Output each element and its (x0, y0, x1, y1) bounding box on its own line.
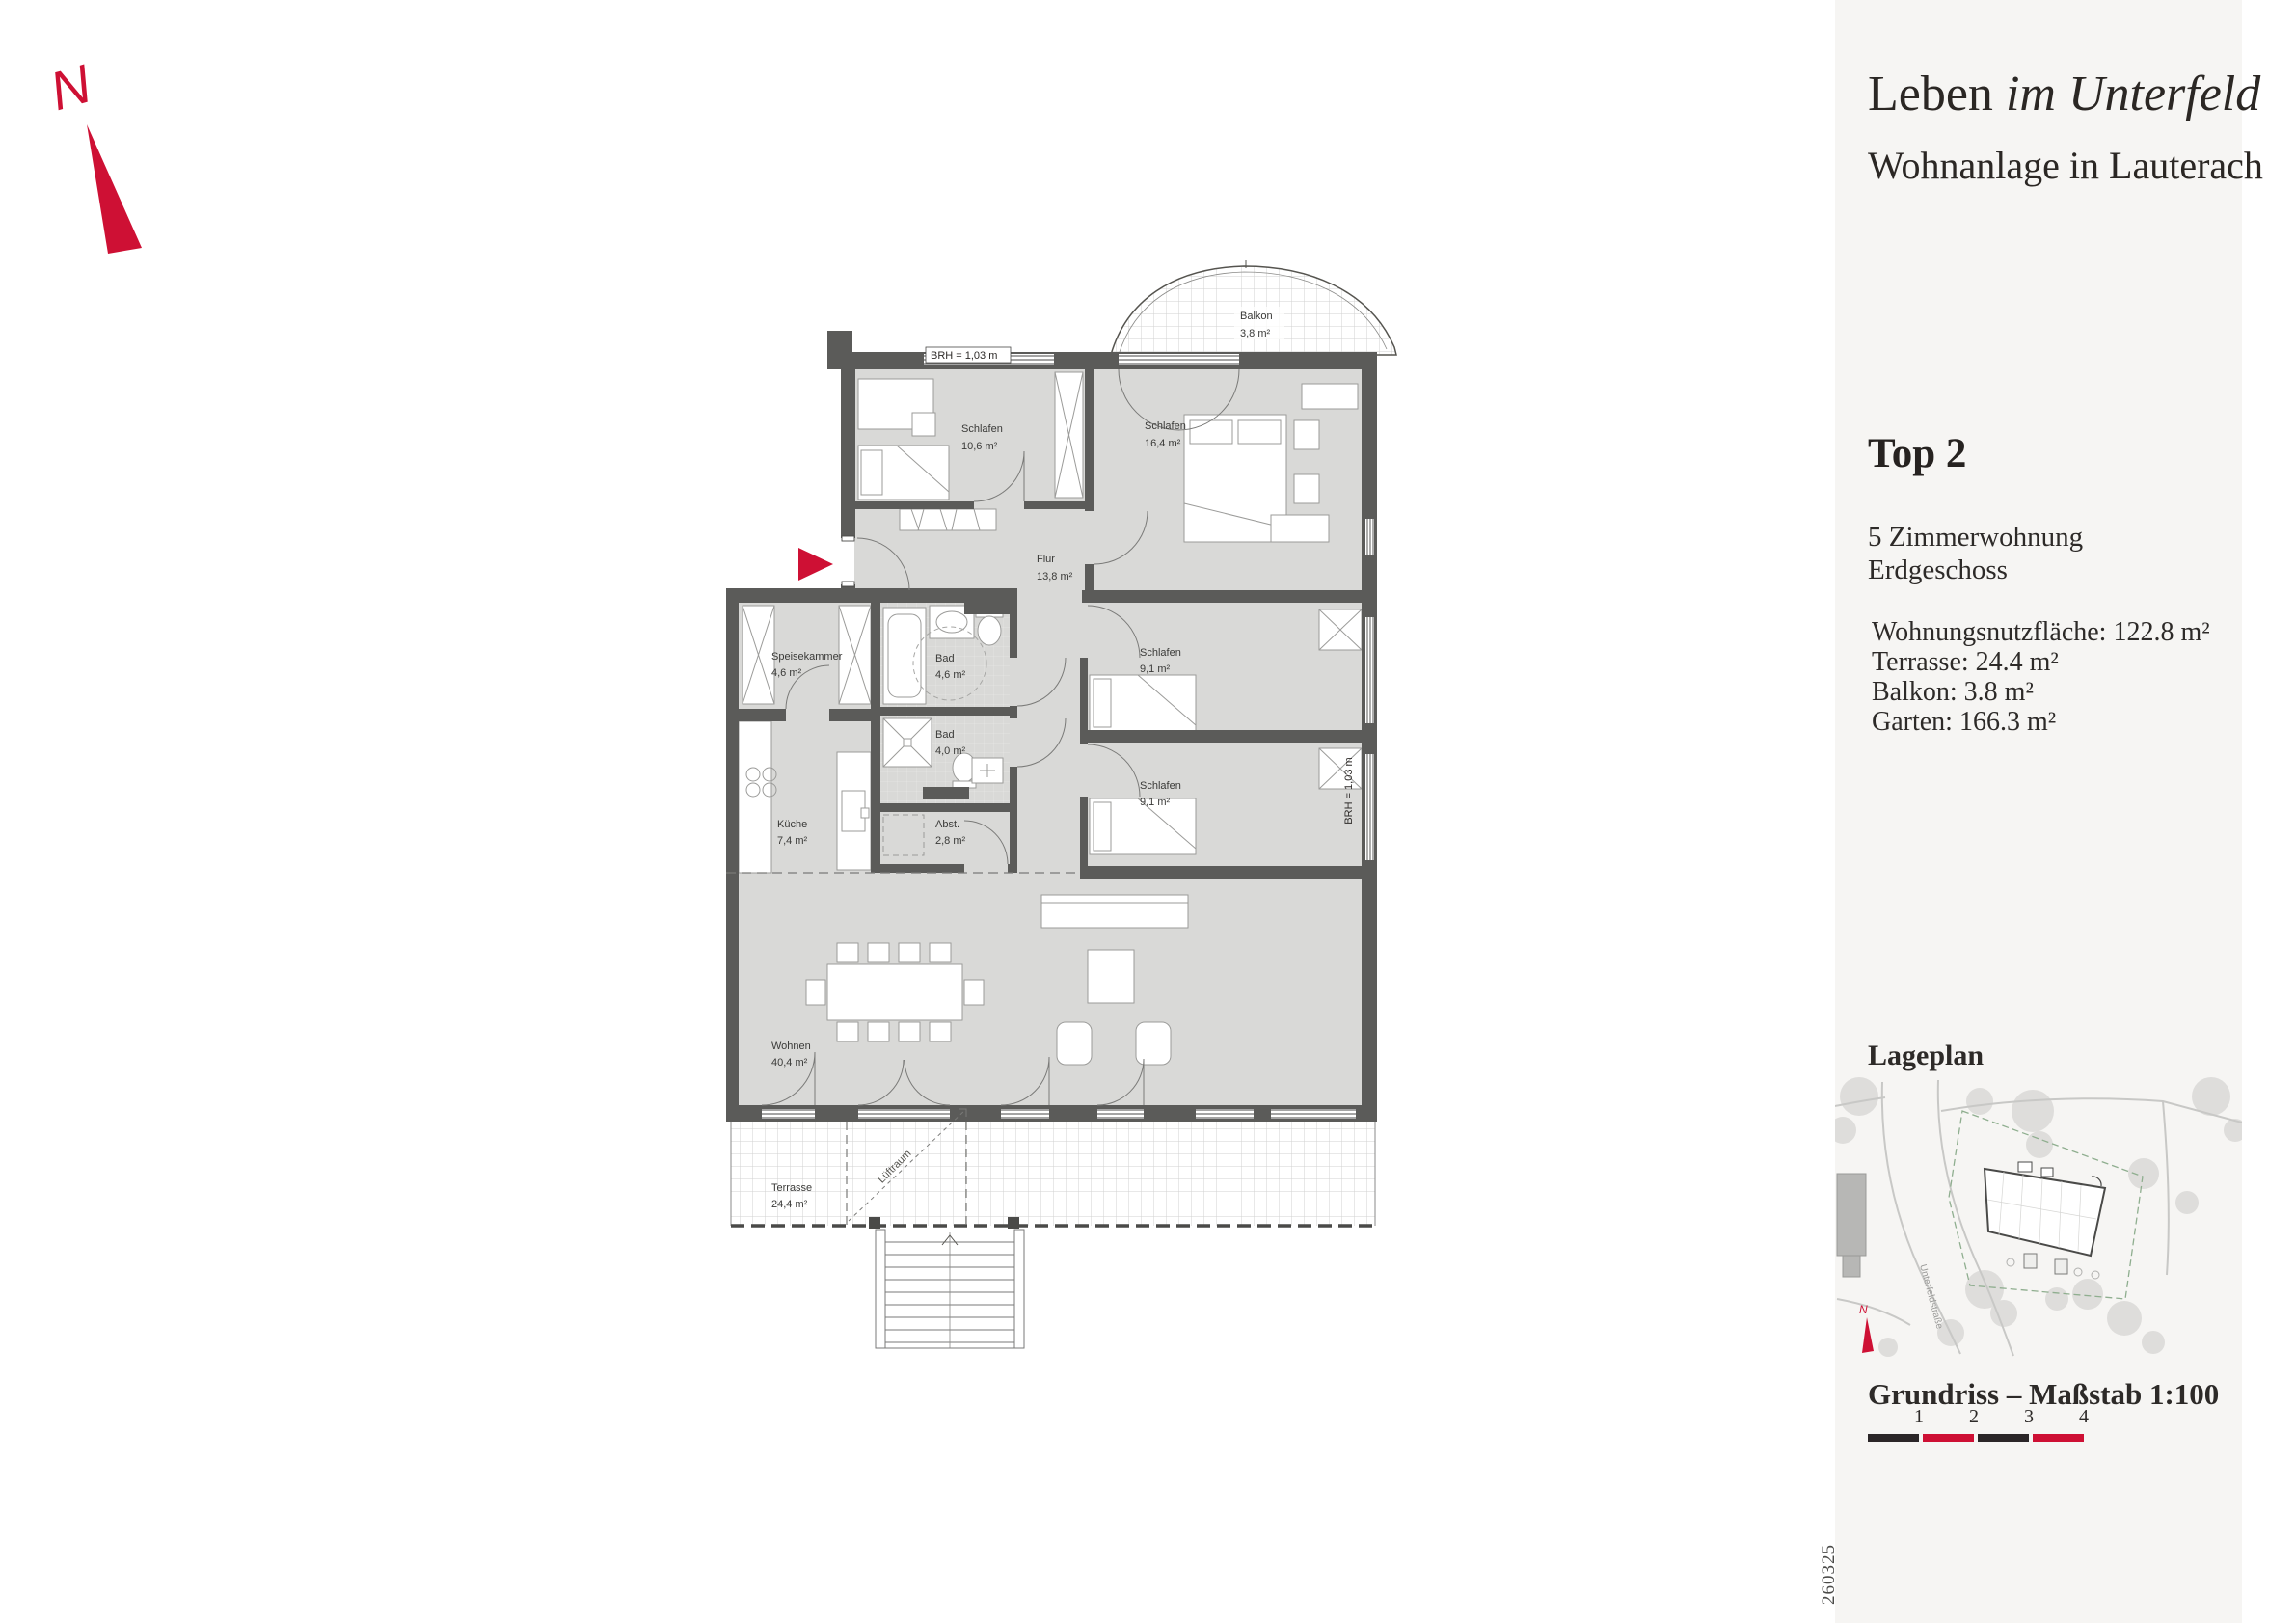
project-title-italic: im Unterfeld (2006, 67, 2260, 122)
street-label: Unterfeldstraße (1917, 1263, 1945, 1331)
project-title-regular: Leben (1868, 67, 1993, 122)
bench-icon (1271, 515, 1329, 542)
scale-tick: 4 (2069, 1406, 2098, 1428)
room-label: Schlafen (1140, 647, 1181, 659)
area-line: Terrasse: 24.4 m² (1872, 647, 2210, 677)
dresser-icon (1302, 384, 1358, 409)
project-building-footprint (1985, 1162, 2105, 1279)
room-area: 9,1 m² (1140, 797, 1171, 808)
coffee-table-icon (1088, 950, 1134, 1003)
scale-segment (1923, 1434, 1974, 1442)
nightstand-icon (1294, 474, 1319, 503)
room-label: Schlafen (1145, 420, 1186, 432)
bed-icon (858, 446, 949, 500)
scale-tick: 1 (1904, 1406, 1933, 1428)
document-number: 260325 (1819, 1512, 1842, 1605)
floorplan-sheet: N (0, 0, 2296, 1623)
area-line: Wohnungsnutzfläche: 122.8 m² (1872, 617, 2210, 647)
project-subtitle: Wohnanlage in Lauterach (1868, 143, 2263, 188)
north-arrow: N (39, 43, 164, 275)
room-area: 24,4 m² (771, 1199, 808, 1210)
site-plan: Unterfeldstraße N (1835, 1072, 2242, 1362)
floor-plan: Balkon 3,8 m² Schlafen 10,6 m² Schlafen … (675, 164, 1466, 1379)
bed-icon (1090, 675, 1196, 731)
north-arrow-label: N (43, 52, 98, 122)
room-label: Flur (1037, 554, 1055, 565)
area-line: Balkon: 3.8 m² (1872, 677, 2210, 707)
coatrack-icon (900, 509, 996, 530)
shower-icon (883, 718, 932, 767)
neighbor-building (1837, 1174, 1866, 1277)
room-area: 16,4 m² (1145, 438, 1181, 449)
north-arrow-pointer (87, 124, 142, 254)
entrance-arrow (798, 548, 833, 581)
desk-icon (858, 379, 935, 436)
bathtub-icon (883, 608, 926, 704)
siteplan-north-arrow: N (1859, 1303, 1874, 1353)
room-label: Speisekammer (771, 651, 843, 663)
room-area: 4,0 m² (935, 745, 966, 757)
wardrobe-icon (1319, 748, 1362, 789)
scale-segment (1868, 1434, 1919, 1442)
room-area: 10,6 m² (961, 441, 998, 452)
shelf-icon (743, 606, 774, 704)
room-area: 40,4 m² (771, 1057, 808, 1068)
sink-icon (972, 758, 1003, 783)
room-area: 13,8 m² (1037, 571, 1073, 582)
sidebar: Leben im Unterfeld Wohnanlage in Lautera… (1835, 0, 2242, 1623)
stairs (876, 1230, 1024, 1348)
room-area: 2,8 m² (935, 835, 966, 847)
nightstand-icon (1294, 420, 1319, 449)
sofa-icon (1041, 895, 1188, 928)
wardrobe-icon (1319, 609, 1362, 650)
brh-right-label: BRH = 1,03 m (1343, 757, 1355, 824)
kitchen-island-icon (837, 752, 871, 870)
shelf-icon (839, 606, 871, 704)
scale-tick-labels: 1 2 3 4 (1868, 1406, 2099, 1427)
scale-segment (2033, 1434, 2084, 1442)
unit-type: 5 Zimmerwohnung (1868, 521, 2083, 554)
armchair-icon (1136, 1022, 1171, 1065)
room-label: Bad (935, 729, 955, 741)
room-label: Terrasse (771, 1182, 812, 1194)
room-label: Schlafen (1140, 780, 1181, 792)
room-label: Wohnen (771, 1041, 811, 1052)
room-label: Schlafen (961, 423, 1003, 435)
scale-tick: 3 (2014, 1406, 2043, 1428)
area-list: Wohnungsnutzfläche: 122.8 m² Terrasse: 2… (1872, 617, 2210, 737)
room-area: 4,6 m² (771, 667, 802, 679)
room-label: Abst. (935, 819, 959, 830)
room-area: 4,6 m² (935, 669, 966, 681)
balcony (1111, 260, 1396, 355)
room-label: Bad (935, 653, 955, 664)
room-label: Küche (777, 819, 807, 830)
room-area: 3,8 m² (1240, 328, 1271, 339)
room-label: Balkon (1240, 311, 1273, 322)
scale-bar (1868, 1434, 2099, 1442)
room-area: 7,4 m² (777, 835, 808, 847)
project-title: Leben im Unterfeld (1868, 66, 2260, 122)
terrace (731, 1122, 1375, 1229)
brh-top-label: BRH = 1,03 m (931, 350, 997, 362)
siteplan-heading: Lageplan (1868, 1040, 1984, 1072)
unit-floor: Erdgeschoss (1868, 554, 2083, 586)
siteplan-north-label: N (1859, 1303, 1868, 1316)
scale-tick: 2 (1959, 1406, 1988, 1428)
unit-title: Top 2 (1868, 430, 1966, 477)
kitchen-counter-icon (739, 721, 776, 873)
area-line: Garten: 166.3 m² (1872, 707, 2210, 737)
room-area: 9,1 m² (1140, 663, 1171, 675)
wardrobe-icon (1055, 372, 1083, 498)
scale-segment (1978, 1434, 2029, 1442)
unit-description: 5 Zimmerwohnung Erdgeschoss (1868, 521, 2083, 586)
armchair-icon (1057, 1022, 1092, 1065)
